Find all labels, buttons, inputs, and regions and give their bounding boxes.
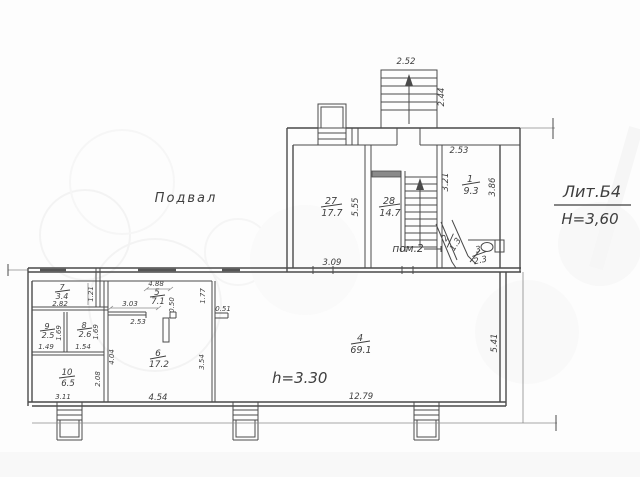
dim-duct: 0.50 <box>168 297 176 313</box>
room-10-label: 10 6.5 <box>59 368 75 389</box>
room-3-label: 3 2.3 <box>470 244 489 268</box>
dim-room1-left: 3.21 <box>441 173 451 192</box>
svg-text:6.5: 6.5 <box>61 379 75 389</box>
room-9-label: 9 2.5 <box>40 322 55 340</box>
room-5-label: 5 7.1 <box>150 288 165 307</box>
svg-text:14.7: 14.7 <box>379 208 400 219</box>
dim-room8-height: 1.69 <box>92 324 100 340</box>
dim-room7-width: 2.82 <box>52 300 68 308</box>
room-27-label: 27 17.7 <box>321 196 343 219</box>
svg-text:2.6: 2.6 <box>79 330 92 339</box>
dim-room4-width: 12.79 <box>349 392 373 402</box>
dim-stair-depth: 2.44 <box>437 88 447 107</box>
svg-text:2.5: 2.5 <box>42 331 55 340</box>
room-4-label: 4 69.1 <box>350 333 371 356</box>
dim-room5-seg2: 2.53 <box>130 318 146 326</box>
dim-room27-height: 5.55 <box>351 198 361 217</box>
dim-room9-height: 1.69 <box>55 325 63 341</box>
dim-room10-width: 3.11 <box>55 393 71 401</box>
svg-text:2.3: 2.3 <box>473 255 488 268</box>
rooms-2-3-walls <box>436 220 500 268</box>
window-well-top <box>318 104 346 145</box>
dim-room1-width: 2.53 <box>450 146 469 156</box>
dim-gap: 1.77 <box>199 288 207 304</box>
dim-room6-right: 3.54 <box>198 354 206 370</box>
liter-label: Лит.Б4 <box>562 182 621 201</box>
room-8-label: 8 2.6 <box>77 321 92 339</box>
window-well-1 <box>57 402 82 440</box>
svg-text:7.1: 7.1 <box>151 297 165 307</box>
svg-text:9.3: 9.3 <box>463 186 478 197</box>
room-28-label: 28 14.7 <box>379 196 401 219</box>
building-height-label: Н=3,60 <box>561 210 618 228</box>
dim-room6-width: 4.54 <box>149 393 168 403</box>
ceiling-height-label: h=3.30 <box>272 369 327 387</box>
floor-plan-svg: 2.52 2.44 27 17.7 5.55 3.09 <box>0 0 640 477</box>
dim-room5-seg1: 3.03 <box>122 300 138 308</box>
dim-stub: 0.51 <box>215 305 231 313</box>
dim-room10-height: 2.08 <box>94 371 102 387</box>
window-well-3 <box>414 402 439 440</box>
svg-text:69.1: 69.1 <box>350 345 371 356</box>
window-well-2 <box>233 402 258 440</box>
dim-room27-width: 3.09 <box>323 258 342 268</box>
svg-text:17.7: 17.7 <box>321 208 342 219</box>
dim-room9-width: 1.49 <box>38 343 54 351</box>
dim-room4-height: 5.41 <box>490 334 500 353</box>
svg-text:17.2: 17.2 <box>149 360 169 370</box>
floor-title: Подвал <box>155 191 218 206</box>
floor-plan-photo: 2.52 2.44 27 17.7 5.55 3.09 <box>0 0 640 477</box>
wall-pier <box>163 318 169 342</box>
dim-room7-height: 1.21 <box>87 286 95 302</box>
room-7-label: 7 3.4 <box>55 283 70 301</box>
dim-room8-width: 1.54 <box>75 343 91 351</box>
dim-room5-width: 4.88 <box>148 280 164 288</box>
exterior-stairs-icon <box>381 70 437 128</box>
dim-room1-right: 3.86 <box>488 177 498 197</box>
room-1-label: 1 9.3 <box>462 174 480 197</box>
room-6-label: 6 17.2 <box>149 349 169 370</box>
pom2-label: пом.2 <box>392 243 424 255</box>
dim-corridor: 4.04 <box>108 349 116 365</box>
dim-stair-width: 2.52 <box>397 57 416 67</box>
